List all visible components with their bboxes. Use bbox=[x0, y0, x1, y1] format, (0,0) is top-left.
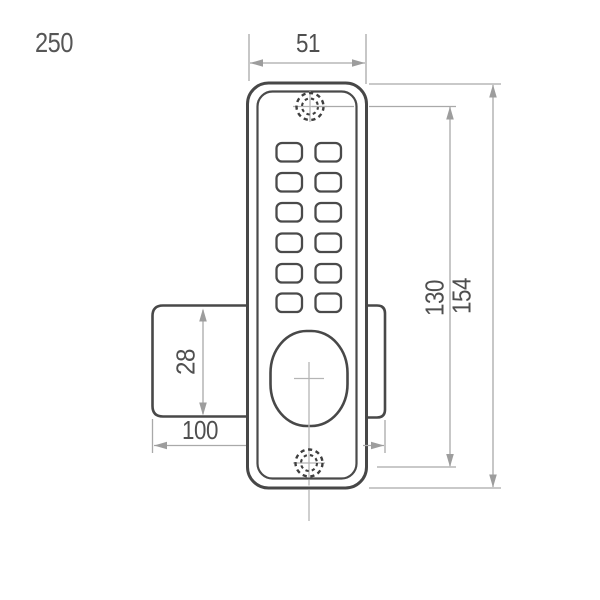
arrow-right-icon bbox=[352, 59, 365, 67]
arrow-up-icon bbox=[489, 85, 497, 98]
keypad-button bbox=[277, 264, 303, 283]
keypad-button bbox=[277, 294, 303, 313]
dim-label-100: 100 bbox=[182, 415, 218, 445]
keypad-button bbox=[277, 143, 303, 162]
keypad-button bbox=[316, 264, 342, 283]
keypad-button bbox=[316, 234, 342, 253]
arrow-down-icon bbox=[446, 454, 454, 467]
keypad-button bbox=[316, 203, 342, 222]
keypad-lock-drawing: 51 130 154 28 100 250 bbox=[0, 0, 600, 600]
dim-label-51: 51 bbox=[296, 28, 320, 58]
drawing-reference-label: 250 bbox=[35, 27, 73, 58]
keypad-button bbox=[277, 203, 303, 222]
dimension-body-width: 51 bbox=[249, 28, 366, 84]
arrow-down-icon bbox=[489, 475, 497, 488]
keypad-button bbox=[316, 143, 342, 162]
arrow-left-icon bbox=[250, 59, 263, 67]
keypad-button bbox=[316, 294, 342, 313]
dim-label-28: 28 bbox=[171, 349, 201, 375]
arrow-up-icon bbox=[446, 107, 454, 120]
keypad-button bbox=[277, 173, 303, 192]
dim-label-130: 130 bbox=[420, 280, 450, 316]
arrow-left-icon bbox=[154, 442, 167, 450]
dim-label-154: 154 bbox=[447, 278, 477, 314]
keypad-button bbox=[316, 173, 342, 192]
technical-drawing-canvas: 51 130 154 28 100 250 bbox=[0, 0, 600, 600]
arrow-right-icon bbox=[371, 442, 384, 450]
keypad-button bbox=[277, 234, 303, 253]
